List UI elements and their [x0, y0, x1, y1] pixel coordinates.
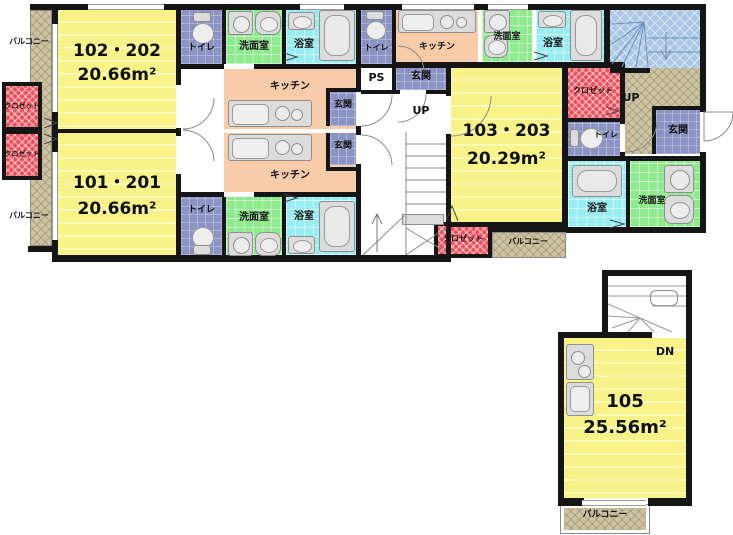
label-toilet-102: トイレ [181, 44, 222, 54]
wall [222, 197, 226, 255]
label-bathroom-102: 浴室 [286, 39, 322, 50]
label-bathroom-101: 浴室 [286, 211, 322, 222]
unit-103-area: 20.29m² [451, 150, 562, 169]
label-toilet-101: トイレ [181, 206, 222, 216]
label-balcony-left-top: バルコニー [0, 38, 58, 47]
label-balcony-left-bottom: バルコニー [0, 212, 58, 221]
toilet-tank-right [570, 129, 579, 147]
unit-103-name: 103・203 [451, 122, 562, 141]
wall [282, 8, 286, 64]
bathtub-102 [319, 10, 355, 61]
wall [700, 4, 706, 112]
unit-102-area: 20.66m² [58, 66, 176, 85]
label-balcony-103: バルコニー [490, 238, 566, 247]
label-toilet-103: トイレ [361, 44, 392, 53]
label-entrance-103: 玄関 [396, 71, 446, 82]
washer-102 [228, 11, 253, 35]
label-washroom-101: 洗面室 [226, 212, 282, 223]
bath-vanity-101 [288, 236, 315, 254]
wall [604, 4, 610, 68]
wall [254, 64, 361, 69]
floor-plan: 102・202 20.66m² 101・201 20.66m² 103・203 … [0, 0, 733, 535]
label-entrance-101: 玄関 [330, 142, 356, 152]
bathtub-103 [570, 10, 602, 61]
unit-101-area: 20.66m² [58, 200, 176, 219]
wall [361, 64, 392, 68]
kitchen-counter-101 [228, 134, 312, 161]
label-washroom-right: 洗面室 [628, 197, 676, 207]
unit-102-name: 102・202 [58, 42, 176, 61]
wall [610, 68, 650, 73]
door-arc [183, 130, 214, 161]
wall [181, 64, 224, 69]
toilet-tank-103 [366, 11, 384, 20]
wall [52, 255, 451, 262]
wall [392, 8, 396, 66]
wall [326, 133, 330, 171]
wall [686, 270, 692, 506]
unit-105-area: 25.56m² [564, 418, 686, 438]
washer-101 [228, 232, 253, 256]
wall [176, 128, 181, 136]
label-entrance-right: 玄関 [656, 125, 700, 136]
wall [356, 164, 361, 255]
label-entrance-102: 玄関 [330, 101, 356, 111]
unit-105-name: 105 [564, 392, 686, 412]
wall [648, 498, 692, 506]
wall [396, 90, 400, 94]
bath-vanity-103 [538, 11, 566, 28]
wall [602, 270, 608, 338]
washer-right [664, 165, 694, 193]
bathtub-right [572, 165, 622, 197]
label-toilet-right: トイレ [590, 131, 622, 140]
label-closet-102: クロゼット [0, 103, 44, 111]
wall [28, 246, 58, 252]
stair-landing [402, 214, 444, 225]
wall [602, 332, 652, 338]
wall [558, 498, 584, 506]
window [582, 500, 646, 506]
wall [356, 126, 361, 135]
toilet-tank-101 [193, 245, 211, 255]
window [52, 152, 58, 240]
wall [361, 90, 392, 94]
label-closet-103: クロゼット [434, 235, 492, 244]
unit-101-name: 101・201 [58, 174, 176, 193]
wall [602, 270, 692, 276]
room-101-201 [58, 133, 176, 255]
kitchen-burners-105 [566, 344, 594, 380]
bathtub-101 [319, 201, 355, 252]
label-washroom-103: 洗面室 [482, 33, 532, 43]
sink-101 [255, 232, 281, 256]
label-stairs-down-105: DN [648, 346, 682, 358]
sink-102 [255, 11, 281, 35]
wall [490, 227, 566, 232]
wall [222, 8, 226, 64]
toilet-bowl-102 [192, 23, 214, 44]
upper-stairs [610, 10, 700, 68]
label-kitchen-103: キッチン [396, 43, 478, 53]
wall [396, 62, 566, 68]
label-pipe-space: PS [361, 72, 392, 84]
label-balcony-105: バルコニー [564, 511, 646, 521]
kitchen-counter-102 [228, 100, 312, 127]
wall [626, 156, 706, 161]
toilet-tank-102 [193, 12, 211, 22]
room-103-203 [451, 68, 562, 222]
wall [566, 156, 626, 161]
wall [700, 152, 706, 233]
wall [652, 106, 706, 110]
toilet-bowl-103 [366, 21, 386, 40]
wall [181, 192, 224, 197]
wall [620, 152, 625, 161]
label-bathroom-right: 浴室 [568, 203, 626, 214]
washer-103 [484, 10, 510, 33]
wall [558, 332, 608, 338]
label-stairs-up-right: UP [616, 92, 646, 104]
wall [626, 161, 630, 227]
wall [58, 129, 176, 133]
label-bathroom-103: 浴室 [534, 38, 572, 49]
door-arc [183, 98, 214, 129]
wall [446, 68, 451, 96]
label-washroom-102: 洗面室 [226, 41, 282, 52]
label-closet-101: クロゼット [0, 151, 44, 159]
wall [566, 118, 620, 122]
wall [282, 197, 286, 255]
label-stairs-up-center: UP [404, 105, 438, 117]
label-kitchen-101: キッチン [224, 170, 356, 181]
kitchen-counter-103 [398, 10, 476, 33]
wall [566, 227, 706, 233]
stair-landing-105 [650, 290, 678, 306]
bath-vanity-102 [288, 12, 315, 30]
window [88, 4, 164, 10]
label-kitchen-102: キッチン [224, 81, 356, 92]
wall [254, 192, 361, 197]
exterior-door-arc [704, 112, 733, 141]
